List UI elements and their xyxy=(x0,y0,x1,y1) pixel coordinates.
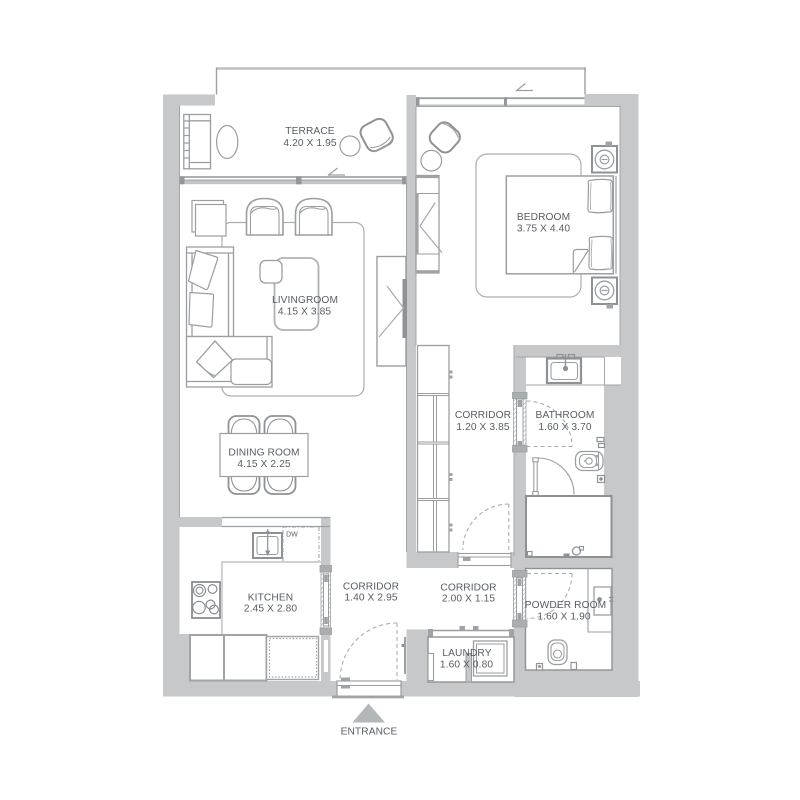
svg-text:DW: DW xyxy=(286,532,298,539)
svg-text:CORRIDOR: CORRIDOR xyxy=(343,582,399,593)
svg-text:4.15 X 2.25: 4.15 X 2.25 xyxy=(237,459,290,470)
svg-text:1.60 X 3.70: 1.60 X 3.70 xyxy=(538,422,591,433)
svg-text:BATHROOM: BATHROOM xyxy=(536,410,595,421)
svg-text:CORRIDOR: CORRIDOR xyxy=(455,410,511,421)
svg-text:POWDER ROOM: POWDER ROOM xyxy=(525,600,606,611)
svg-text:4.20 X 1.95: 4.20 X 1.95 xyxy=(283,138,336,149)
svg-text:BEDROOM: BEDROOM xyxy=(517,212,570,223)
svg-text:2.45 X 2.80: 2.45 X 2.80 xyxy=(244,604,297,615)
svg-text:CORRIDOR: CORRIDOR xyxy=(440,583,496,594)
svg-text:LAUNDRY: LAUNDRY xyxy=(442,648,491,659)
svg-text:KITCHEN: KITCHEN xyxy=(248,593,293,604)
svg-text:1.60 X 0.80: 1.60 X 0.80 xyxy=(440,660,493,671)
svg-text:DINING ROOM: DINING ROOM xyxy=(228,448,299,459)
svg-text:2.00 X 1.15: 2.00 X 1.15 xyxy=(442,594,495,605)
svg-text:ENTRANCE: ENTRANCE xyxy=(341,727,398,738)
svg-text:1.40 X 2.95: 1.40 X 2.95 xyxy=(344,593,397,604)
svg-text:1.20 X 3.85: 1.20 X 3.85 xyxy=(456,422,509,433)
svg-text:LIVINGROOM: LIVINGROOM xyxy=(272,295,338,306)
svg-text:1.60 X 1.90: 1.60 X 1.90 xyxy=(537,612,590,623)
svg-text:TERRACE: TERRACE xyxy=(285,126,334,137)
svg-text:4.15 X 3.85: 4.15 X 3.85 xyxy=(278,307,331,318)
svg-text:3.75 X 4.40: 3.75 X 4.40 xyxy=(517,224,570,235)
